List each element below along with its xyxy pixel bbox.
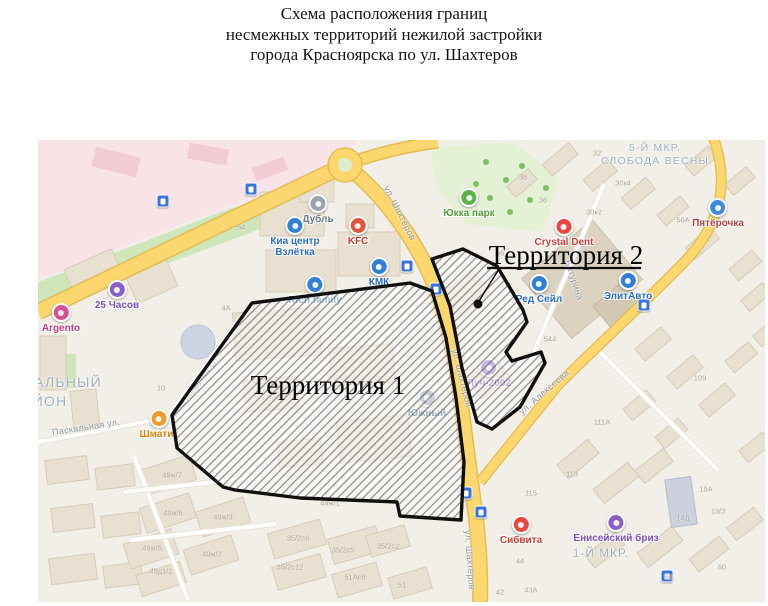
schematic-page: Схема расположения границ несмежных терр… <box>0 0 768 606</box>
page-title: Схема расположения границ несмежных терр… <box>0 4 768 66</box>
title-line-2: несмежных территорий нежилой застройки <box>0 25 768 46</box>
map: 25 ЧасовArgentoШматикДубльКиа центрВзлёт… <box>38 140 765 602</box>
territory-label: Территория 1 <box>251 370 405 401</box>
title-line-3: города Красноярска по ул. Шахтеров <box>0 45 768 66</box>
territory-labels: Территория 1Территория 2 <box>38 140 765 602</box>
territory-label: Территория 2 <box>489 240 643 271</box>
title-line-1: Схема расположения границ <box>0 4 768 25</box>
